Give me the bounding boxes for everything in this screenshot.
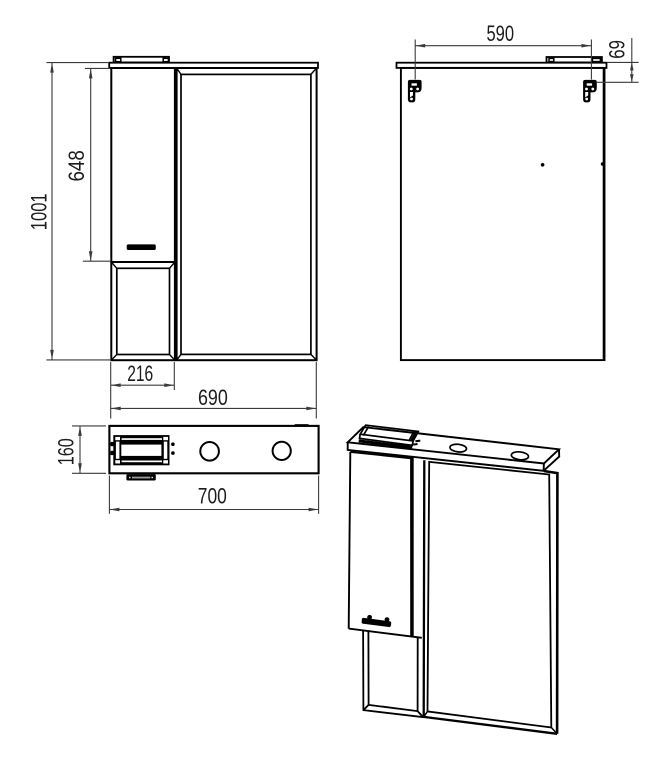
- svg-text:69: 69: [604, 40, 629, 59]
- svg-text:590: 590: [487, 21, 515, 46]
- svg-text:216: 216: [127, 361, 153, 386]
- svg-text:648: 648: [64, 150, 89, 181]
- svg-text:1001: 1001: [27, 193, 52, 230]
- svg-text:160: 160: [54, 438, 79, 465]
- svg-text:700: 700: [198, 483, 227, 508]
- svg-text:690: 690: [198, 385, 228, 410]
